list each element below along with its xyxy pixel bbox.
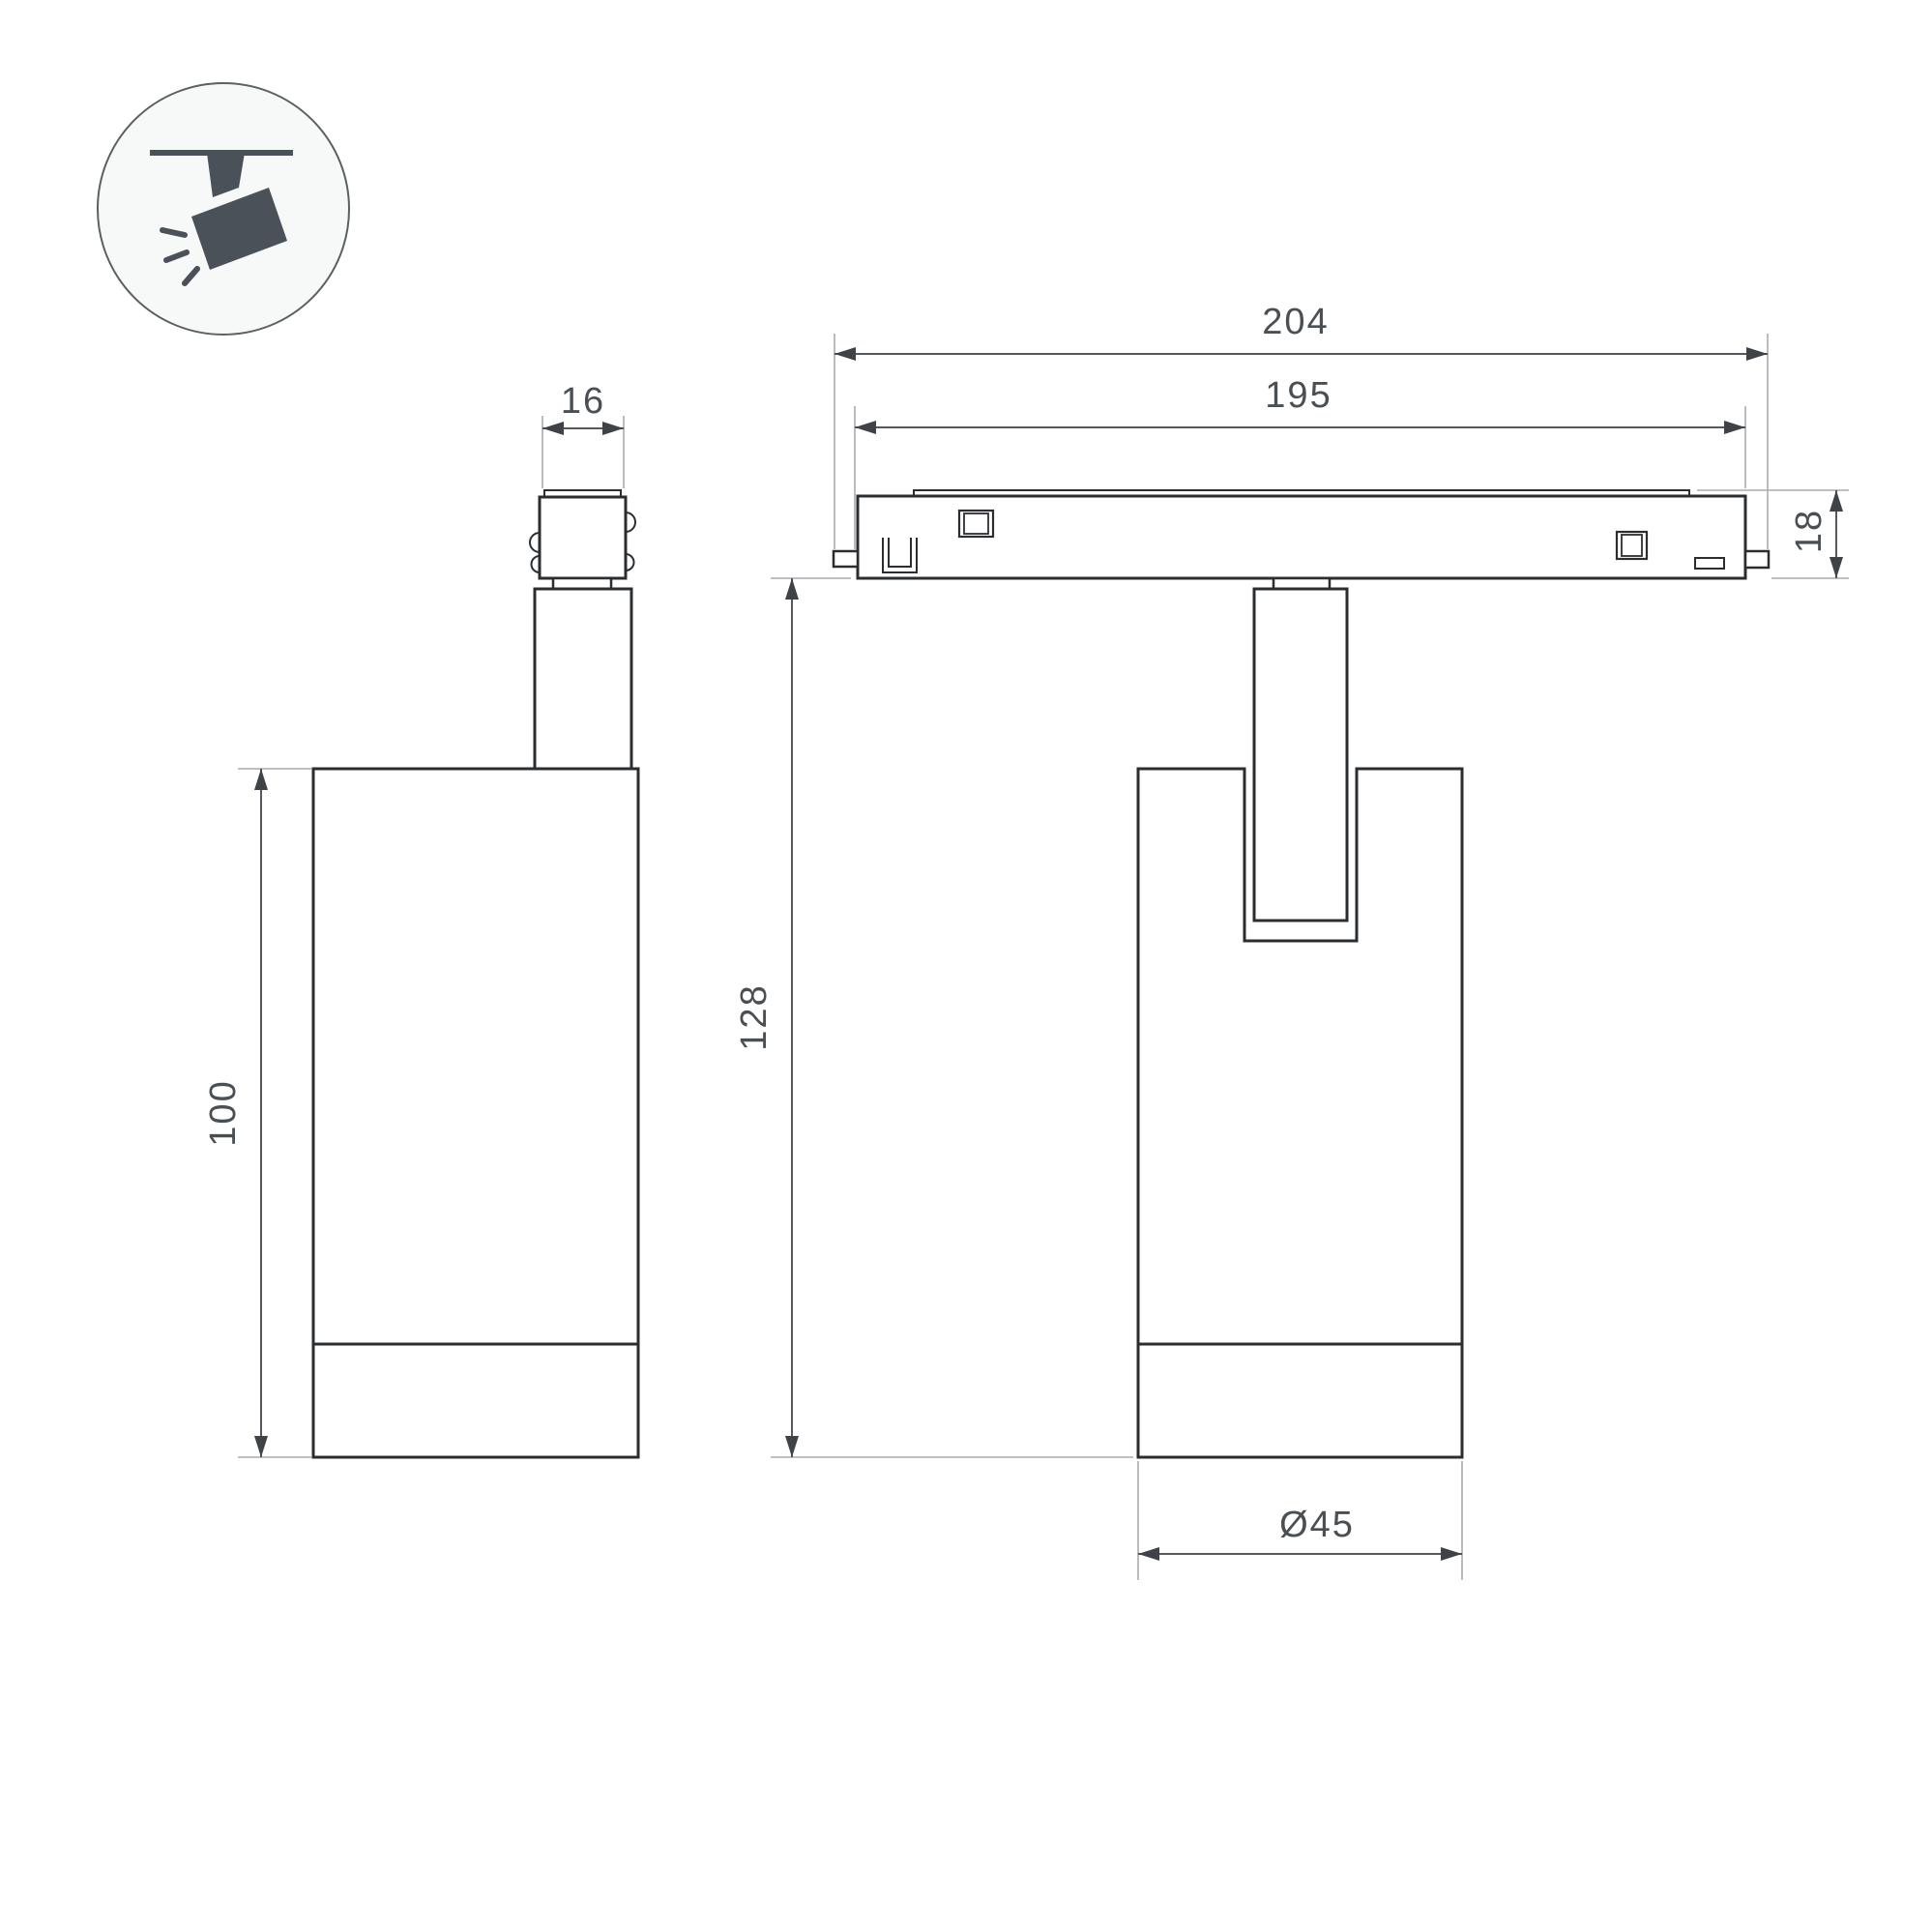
arrow-left-icon xyxy=(834,347,856,361)
arrow-down-icon xyxy=(1830,557,1843,578)
technical-drawing-canvas: 16 100 xyxy=(0,0,1932,1932)
side-stem xyxy=(535,589,631,769)
arrow-right-icon xyxy=(1746,347,1768,361)
arrow-down-icon xyxy=(785,1436,799,1457)
arrow-left-icon xyxy=(542,422,564,435)
technical-drawing-page: 16 100 xyxy=(0,0,1932,1932)
arrow-up-icon xyxy=(785,578,799,600)
dimension-overall-height: 128 xyxy=(734,578,1133,1457)
track-right-end-tab xyxy=(1745,551,1769,568)
arrow-right-icon xyxy=(1441,1547,1462,1561)
front-stem xyxy=(1254,589,1347,921)
dimension-label-overall-height: 128 xyxy=(734,983,775,1050)
side-lamp-body xyxy=(313,769,638,1457)
track-spotlight-icon xyxy=(98,83,349,335)
dimension-adapter-width: 16 xyxy=(542,381,624,488)
track-contact-block-right xyxy=(1617,532,1647,559)
side-adapter-block xyxy=(540,497,626,578)
arrow-right-icon xyxy=(1724,421,1745,434)
arrow-up-icon xyxy=(254,769,268,790)
arrow-right-icon xyxy=(602,422,624,435)
arrow-up-icon xyxy=(1830,490,1843,512)
arrow-left-icon xyxy=(1138,1547,1159,1561)
side-view: 16 100 xyxy=(203,381,638,1457)
arrow-left-icon xyxy=(855,421,876,434)
dimension-label-body-diameter: Ø45 xyxy=(1279,1505,1355,1545)
arrow-down-icon xyxy=(254,1436,268,1457)
front-neck xyxy=(1273,578,1330,589)
dimension-label-overall-length: 204 xyxy=(1262,302,1329,342)
track-left-end-tab xyxy=(834,551,858,567)
side-neck xyxy=(553,578,611,589)
dimension-body-height: 100 xyxy=(203,769,311,1457)
dimension-label-track-length: 195 xyxy=(1265,375,1332,416)
front-view: 204 195 18 xyxy=(734,302,1849,1580)
track-slot-detail xyxy=(1695,558,1724,569)
dimension-body-diameter: Ø45 xyxy=(1138,1461,1462,1580)
track-contact-block-left xyxy=(959,511,993,537)
dimension-label-track-height: 18 xyxy=(1789,509,1830,553)
dimension-label-adapter-width: 16 xyxy=(561,381,605,422)
dimension-label-body-height: 100 xyxy=(203,1079,244,1146)
